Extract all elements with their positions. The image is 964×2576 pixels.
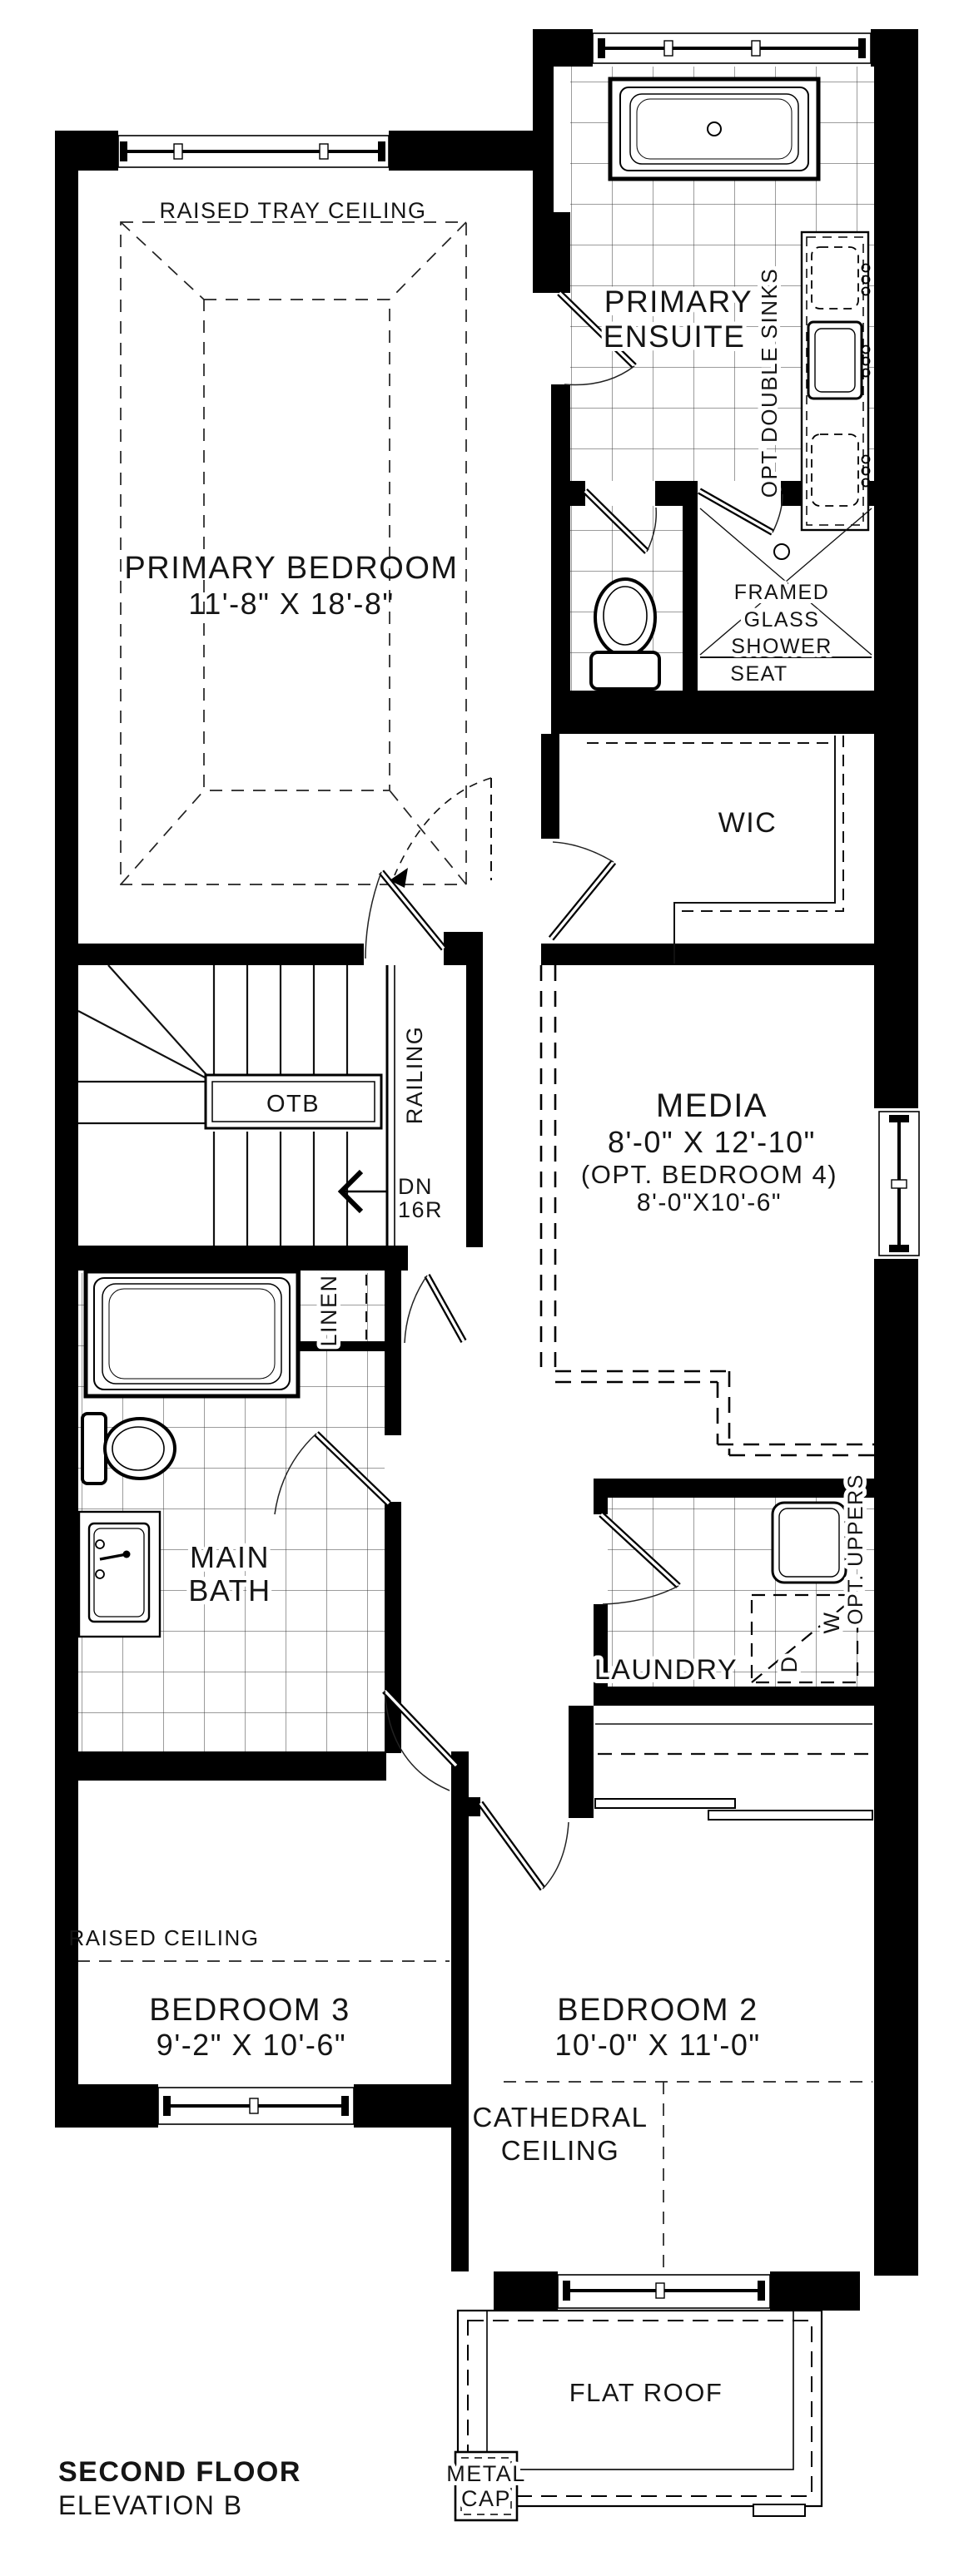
washer-label: W [819, 1612, 844, 1634]
window-bedroom-3 [158, 2088, 354, 2124]
closet-door-panel [708, 1811, 872, 1820]
flat-roof-label: FLAT ROOF [569, 2378, 723, 2407]
tray-ceiling-label: RAISED TRAY CEILING [159, 198, 426, 223]
window-ensuite [593, 33, 871, 63]
window-primary-bedroom [118, 136, 389, 167]
sheet-subtitle: ELEVATION B [58, 2490, 243, 2520]
ensuite-label-1: PRIMARY [604, 285, 753, 319]
media-dims: 8'-0" X 12'-10" [608, 1125, 816, 1159]
ensuite-label-2: ENSUITE [604, 320, 746, 354]
window-media [879, 1112, 919, 1256]
main-bath-vanity [79, 1512, 160, 1637]
bedroom-3-label: BEDROOM 3 [149, 1993, 350, 2028]
primary-bedroom-label: PRIMARY BEDROOM [124, 551, 458, 586]
bedroom-2-label: BEDROOM 2 [557, 1993, 758, 2028]
main-bath-label-1: MAIN [190, 1540, 270, 1574]
metal-cap-label-2: CAP [461, 2486, 511, 2511]
laundry-label: LAUNDRY [594, 1654, 738, 1686]
linen-label: LINEN [316, 1274, 341, 1346]
shower-label-2: GLASS [744, 608, 820, 632]
sheet-title: SECOND FLOOR [58, 2456, 301, 2488]
main-bath-label-2: BATH [188, 1573, 271, 1608]
dn-label: DN [398, 1174, 433, 1199]
cathedral-label-1: CATHEDRAL [473, 2102, 648, 2133]
closet-door-panel [595, 1799, 735, 1808]
shower-label-1: FRAMED [734, 581, 830, 604]
otb-label: OTB [266, 1091, 320, 1117]
railing-label: RAILING [402, 1026, 427, 1125]
tub-drain [708, 122, 721, 136]
bedroom-2-dims: 10'-0" X 11'-0" [554, 2028, 760, 2062]
toilet-main-bath [82, 1414, 175, 1484]
main-bath-tub [86, 1271, 298, 1396]
media-opt-label: (OPT. BEDROOM 4) [581, 1160, 837, 1189]
shower-seat-label: SEAT [730, 662, 788, 686]
opt-double-sinks-label: OPT DOUBLE SINKS [757, 268, 782, 498]
media-opt-dims: 8'-0"X10'-6" [637, 1189, 782, 1216]
primary-bedroom-dims: 11'-8" X 18'-8" [188, 587, 394, 621]
wic-label: WIC [718, 807, 778, 839]
ensuite-tub [610, 79, 818, 179]
cathedral-label-2: CEILING [501, 2135, 620, 2166]
window-bedroom-2 [558, 2275, 770, 2308]
risers-label: 16R [398, 1197, 443, 1222]
shower-drain [774, 544, 789, 559]
floor-plan-drawing: RAISED TRAY CEILING PRIMARY BEDROOM 11'-… [0, 0, 964, 2576]
raised-ceiling-label: RAISED CEILING [68, 1925, 259, 1950]
bedroom-3-dims: 9'-2" X 10'-6" [157, 2028, 346, 2062]
shower-label-3: SHOWER [731, 635, 832, 658]
metal-cap-label-1: METAL [446, 2461, 526, 2486]
toilet-ensuite [591, 579, 659, 689]
floor-plan-page: RAISED TRAY CEILING PRIMARY BEDROOM 11'-… [0, 0, 964, 2576]
media-label: MEDIA [656, 1087, 768, 1124]
ensuite-vanity [802, 232, 870, 530]
dryer-label: D [777, 1656, 802, 1673]
opt-uppers-label: OPT. UPPERS [844, 1474, 867, 1625]
